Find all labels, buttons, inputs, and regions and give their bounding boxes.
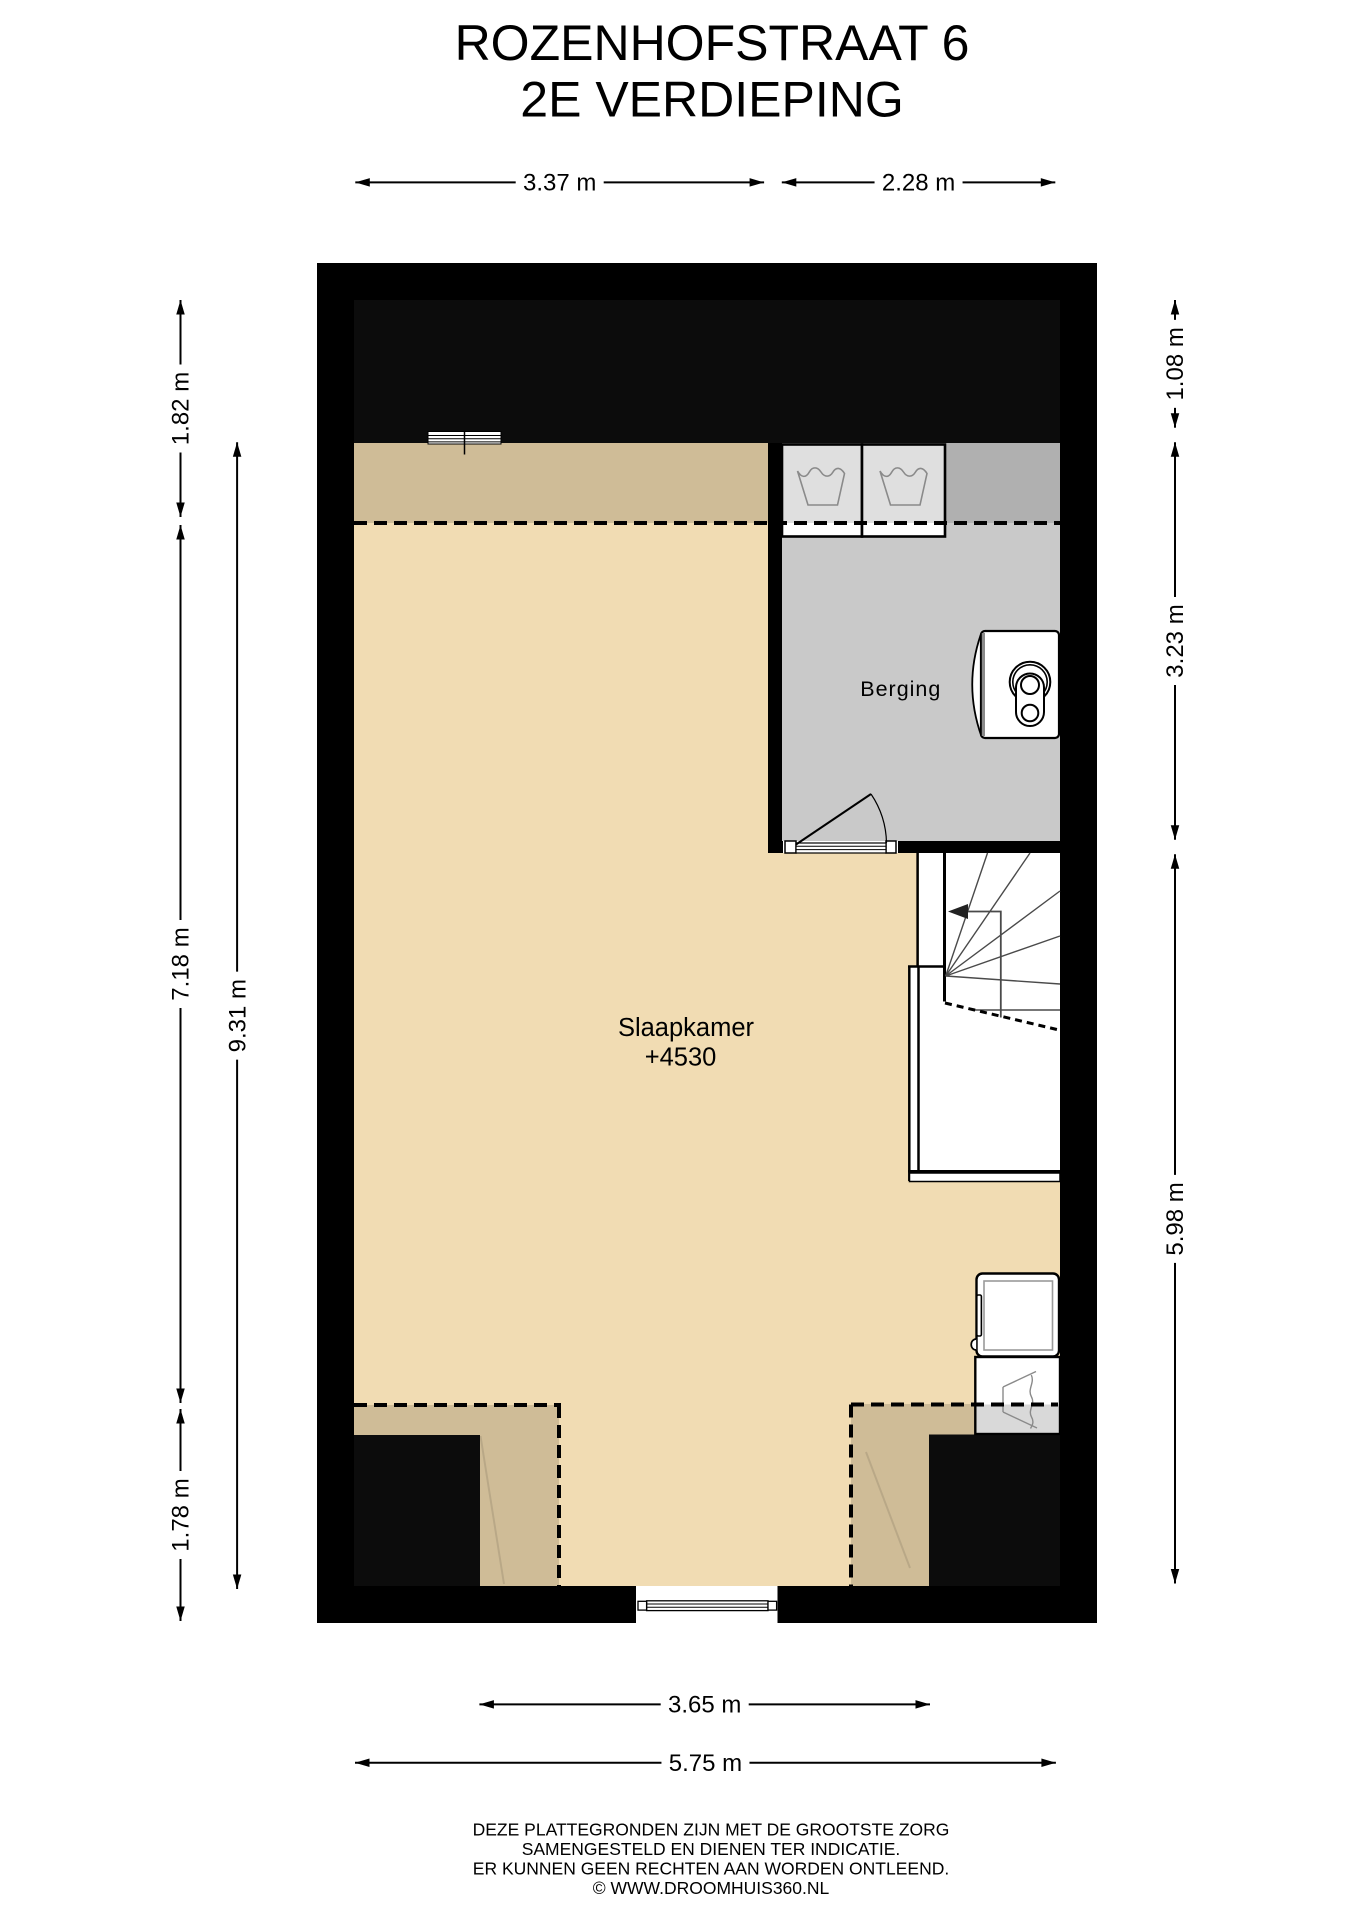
svg-text:ER KUNNEN GEEN RECHTEN AAN WOR: ER KUNNEN GEEN RECHTEN AAN WORDEN ONTLEE… — [473, 1859, 949, 1879]
svg-text:5.75 m: 5.75 m — [669, 1750, 742, 1777]
svg-text:DEZE PLATTEGRONDEN ZIJN MET DE: DEZE PLATTEGRONDEN ZIJN MET DE GROOTSTE … — [473, 1820, 950, 1840]
svg-text:2.28 m: 2.28 m — [882, 170, 955, 197]
svg-text:3.37 m: 3.37 m — [523, 170, 596, 197]
svg-text:ROZENHOFSTRAAT 6: ROZENHOFSTRAAT 6 — [455, 15, 970, 71]
svg-text:3.65 m: 3.65 m — [668, 1692, 741, 1719]
svg-text:Slaapkamer: Slaapkamer — [618, 1014, 755, 1042]
svg-text:Berging: Berging — [860, 677, 941, 701]
svg-text:© WWW.DROOMHUIS360.NL: © WWW.DROOMHUIS360.NL — [593, 1878, 830, 1898]
svg-text:+4530: +4530 — [645, 1044, 717, 1072]
svg-text:3.23 m: 3.23 m — [1162, 604, 1189, 677]
svg-text:1.82 m: 1.82 m — [168, 372, 195, 445]
svg-text:5.98 m: 5.98 m — [1162, 1182, 1189, 1255]
svg-text:9.31 m: 9.31 m — [224, 979, 251, 1052]
svg-text:7.18 m: 7.18 m — [168, 927, 195, 1000]
svg-text:2E VERDIEPING: 2E VERDIEPING — [520, 72, 903, 128]
svg-text:SAMENGESTELD EN DIENEN TER IND: SAMENGESTELD EN DIENEN TER INDICATIE. — [522, 1839, 901, 1859]
svg-text:1.78 m: 1.78 m — [168, 1478, 195, 1551]
svg-text:1.08 m: 1.08 m — [1162, 327, 1189, 400]
